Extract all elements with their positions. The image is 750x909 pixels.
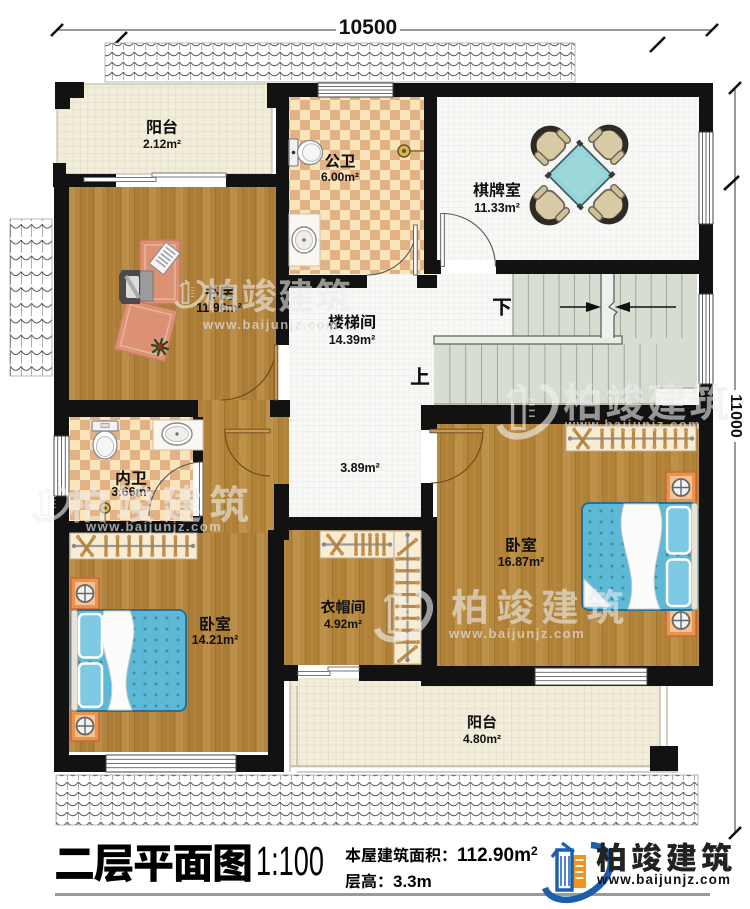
svg-text:4.92m²: 4.92m² — [324, 617, 362, 631]
svg-text:11.33m²: 11.33m² — [474, 201, 520, 215]
svg-text:4.80m²: 4.80m² — [463, 732, 501, 746]
svg-text:www.baijunjz.com: www.baijunjz.com — [448, 626, 585, 641]
svg-text:www.baijunjz.com: www.baijunjz.com — [85, 519, 222, 534]
svg-text:10500: 10500 — [339, 16, 397, 39]
svg-text:112.90m2: 112.90m2 — [457, 844, 538, 866]
svg-text:14.39m²: 14.39m² — [329, 333, 376, 347]
svg-text:3.89m²: 3.89m² — [340, 461, 380, 475]
svg-text:www.baijunjz.com: www.baijunjz.com — [596, 872, 731, 887]
svg-text:14.21m²: 14.21m² — [192, 633, 239, 647]
svg-text:www.baijunjz.com: www.baijunjz.com — [202, 317, 339, 332]
svg-text:www.baijunjz.com: www.baijunjz.com — [564, 417, 701, 432]
svg-text:16.87m²: 16.87m² — [498, 555, 545, 569]
svg-text:1:100: 1:100 — [256, 838, 324, 884]
svg-text:2.12m²: 2.12m² — [143, 137, 181, 151]
svg-text:3.3m: 3.3m — [393, 872, 432, 891]
svg-text:11000: 11000 — [727, 394, 744, 438]
svg-text:6.00m²: 6.00m² — [321, 170, 359, 184]
